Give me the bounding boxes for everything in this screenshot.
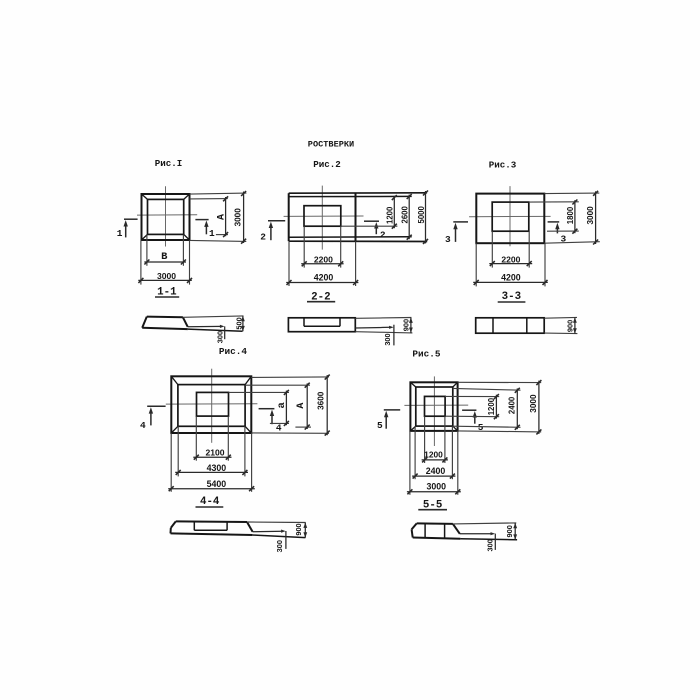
svg-text:3-3: 3-3: [502, 291, 521, 303]
svg-text:1: 1: [117, 228, 123, 239]
svg-text:А: А: [217, 214, 228, 220]
svg-text:3000: 3000: [586, 206, 595, 225]
svg-text:3600: 3600: [316, 391, 325, 410]
svg-text:2: 2: [260, 232, 266, 243]
svg-text:500: 500: [234, 317, 243, 329]
svg-text:1: 1: [209, 228, 215, 239]
svg-text:2100: 2100: [205, 448, 224, 458]
svg-text:Рис.2: Рис.2: [313, 159, 341, 170]
svg-text:1200: 1200: [386, 206, 395, 224]
svg-text:1200: 1200: [424, 449, 443, 459]
svg-text:2400: 2400: [508, 396, 517, 414]
svg-text:900: 900: [505, 525, 514, 537]
svg-text:900: 900: [401, 319, 410, 331]
svg-text:2: 2: [380, 230, 386, 241]
svg-text:3000: 3000: [157, 271, 176, 281]
svg-text:4200: 4200: [314, 273, 334, 283]
svg-text:РОСТВЕРКИ: РОСТВЕРКИ: [308, 140, 354, 150]
svg-text:300: 300: [275, 540, 284, 552]
svg-text:2200: 2200: [314, 254, 333, 264]
svg-text:300: 300: [215, 331, 224, 343]
svg-text:5000: 5000: [417, 205, 426, 223]
svg-text:1200: 1200: [487, 397, 496, 415]
svg-text:4: 4: [276, 423, 282, 434]
svg-text:Рис.4: Рис.4: [219, 346, 248, 357]
svg-text:1800: 1800: [566, 206, 575, 224]
svg-text:а: а: [276, 401, 288, 408]
svg-text:3000: 3000: [234, 208, 243, 227]
svg-text:3: 3: [445, 234, 451, 245]
svg-text:4200: 4200: [501, 273, 521, 283]
svg-text:2600: 2600: [400, 205, 409, 223]
svg-text:4: 4: [140, 420, 146, 431]
svg-text:Рис.5: Рис.5: [412, 349, 441, 360]
svg-text:2200: 2200: [501, 254, 520, 264]
svg-text:300: 300: [383, 333, 392, 345]
svg-text:А: А: [296, 403, 307, 409]
svg-text:Рис.3: Рис.3: [489, 160, 517, 171]
svg-text:2400: 2400: [426, 466, 446, 476]
svg-text:Рис.I: Рис.I: [155, 158, 183, 169]
svg-text:5: 5: [377, 420, 383, 431]
svg-text:В: В: [161, 251, 168, 263]
svg-text:300: 300: [486, 539, 495, 551]
svg-text:4300: 4300: [207, 463, 227, 473]
svg-text:3000: 3000: [427, 481, 447, 491]
svg-text:900: 900: [294, 523, 303, 535]
svg-text:3000: 3000: [529, 394, 538, 413]
svg-text:5400: 5400: [207, 479, 227, 489]
svg-text:900: 900: [565, 320, 574, 332]
